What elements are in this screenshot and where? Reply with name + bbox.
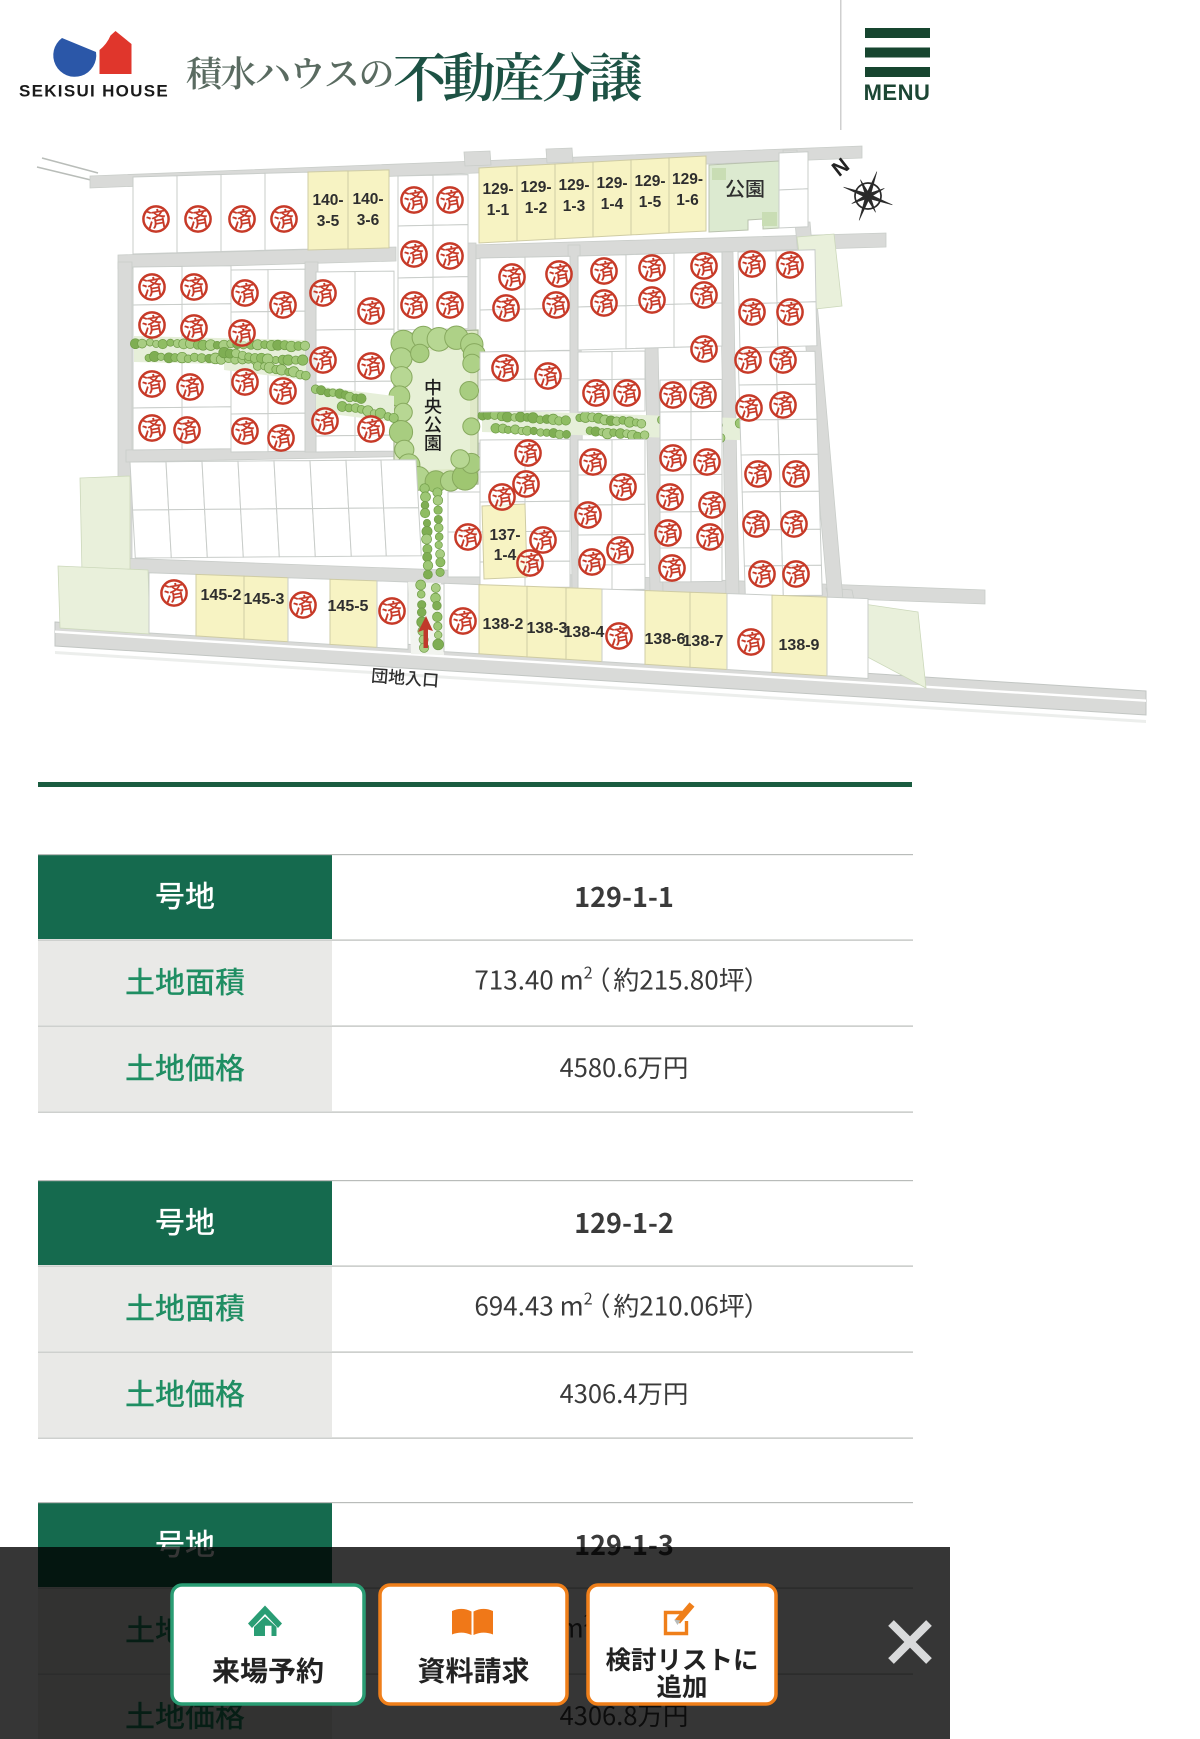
svg-text:1-1: 1-1	[487, 202, 510, 219]
svg-text:MENU: MENU	[864, 80, 931, 105]
svg-text:1-4: 1-4	[494, 547, 517, 564]
svg-text:140-: 140-	[312, 192, 343, 209]
svg-text:SEKISUI HOUSE: SEKISUI HOUSE	[19, 82, 169, 101]
svg-text:1-3: 1-3	[563, 198, 586, 215]
svg-text:3-6: 3-6	[357, 212, 380, 229]
svg-text:1-6: 1-6	[676, 192, 699, 209]
svg-text:3-5: 3-5	[317, 213, 340, 230]
svg-text:138-4: 138-4	[564, 624, 605, 641]
svg-text:138-3: 138-3	[527, 620, 568, 637]
svg-text:145-2: 145-2	[201, 587, 242, 604]
svg-text:129-: 129-	[596, 175, 627, 192]
svg-text:129-: 129-	[558, 177, 589, 194]
svg-text:145-5: 145-5	[328, 598, 369, 615]
svg-text:129-: 129-	[482, 181, 513, 198]
svg-text:1-2: 1-2	[525, 200, 547, 217]
svg-text:129-: 129-	[672, 171, 703, 188]
svg-text:138-6: 138-6	[645, 631, 686, 648]
svg-text:129-: 129-	[520, 179, 551, 196]
svg-text:137-: 137-	[489, 527, 520, 544]
svg-text:1-4: 1-4	[601, 196, 624, 213]
svg-text:129-: 129-	[634, 173, 665, 190]
svg-text:138-7: 138-7	[683, 633, 724, 650]
svg-text:140-: 140-	[352, 191, 383, 208]
svg-text:1-5: 1-5	[639, 194, 662, 211]
svg-text:138-2: 138-2	[483, 616, 524, 633]
svg-text:145-3: 145-3	[244, 591, 285, 608]
svg-text:138-9: 138-9	[779, 637, 820, 654]
